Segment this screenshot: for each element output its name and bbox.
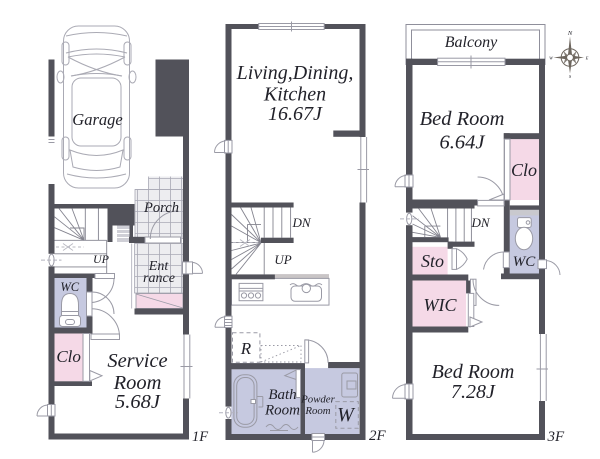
svg-text:1F: 1F bbox=[192, 429, 208, 445]
svg-text:Garage: Garage bbox=[72, 110, 122, 129]
svg-text:UP: UP bbox=[93, 252, 110, 266]
svg-text:Bed Room: Bed Room bbox=[432, 361, 515, 383]
svg-text:Clo: Clo bbox=[56, 347, 81, 366]
svg-text:Living,Dining,: Living,Dining, bbox=[236, 62, 354, 84]
svg-text:Porch: Porch bbox=[143, 200, 179, 216]
svg-text:Sto: Sto bbox=[421, 251, 444, 271]
svg-text:R: R bbox=[240, 339, 252, 358]
svg-text:DN: DN bbox=[470, 215, 490, 230]
svg-text:Clo: Clo bbox=[511, 160, 537, 180]
svg-text:UP: UP bbox=[274, 252, 291, 267]
svg-text:WC: WC bbox=[60, 280, 79, 294]
svg-text:16.67J: 16.67J bbox=[268, 103, 323, 125]
svg-text:WC: WC bbox=[513, 254, 536, 270]
svg-text:Room: Room bbox=[304, 405, 330, 417]
svg-text:DN: DN bbox=[291, 215, 311, 230]
svg-text:3F: 3F bbox=[547, 429, 566, 445]
svg-text:5.68J: 5.68J bbox=[115, 391, 161, 413]
svg-text:N: N bbox=[567, 30, 573, 37]
svg-text:Bath: Bath bbox=[268, 387, 296, 403]
svg-text:Room: Room bbox=[264, 403, 300, 419]
svg-text:E: E bbox=[585, 56, 589, 61]
svg-text:rance: rance bbox=[143, 271, 175, 286]
svg-text:2F: 2F bbox=[369, 428, 387, 444]
svg-text:Balcony: Balcony bbox=[445, 34, 498, 51]
svg-text:Powder: Powder bbox=[300, 394, 335, 406]
svg-text:WIC: WIC bbox=[424, 295, 458, 315]
svg-text:6.64J: 6.64J bbox=[440, 132, 486, 154]
svg-text:Service: Service bbox=[107, 350, 167, 372]
svg-text:Bed Room: Bed Room bbox=[420, 108, 505, 130]
svg-text:W: W bbox=[337, 404, 356, 426]
svg-text:7.28J: 7.28J bbox=[451, 381, 496, 403]
